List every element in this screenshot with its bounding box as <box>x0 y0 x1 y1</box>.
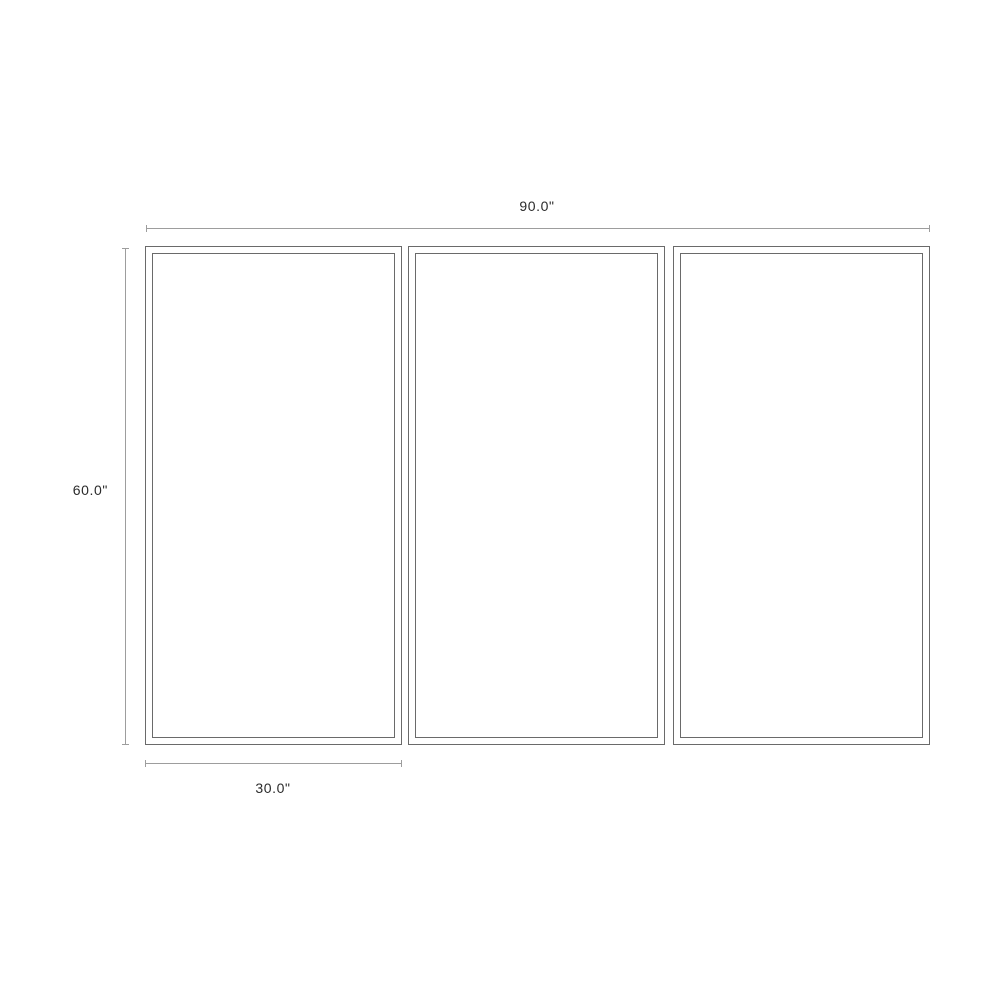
panel-right-inner-frame <box>680 253 923 738</box>
panel-left <box>145 246 402 745</box>
total-width-label: 90.0" <box>519 198 554 214</box>
panel-center-inner-frame <box>415 253 658 738</box>
total-height-label: 60.0" <box>73 482 108 498</box>
dimension-diagram: 90.0" 60.0" 30.0" <box>0 0 1000 1000</box>
panel-right <box>673 246 930 745</box>
panel-center <box>408 246 665 745</box>
panel-left-inner-frame <box>152 253 395 738</box>
panel-width-label: 30.0" <box>255 780 290 796</box>
